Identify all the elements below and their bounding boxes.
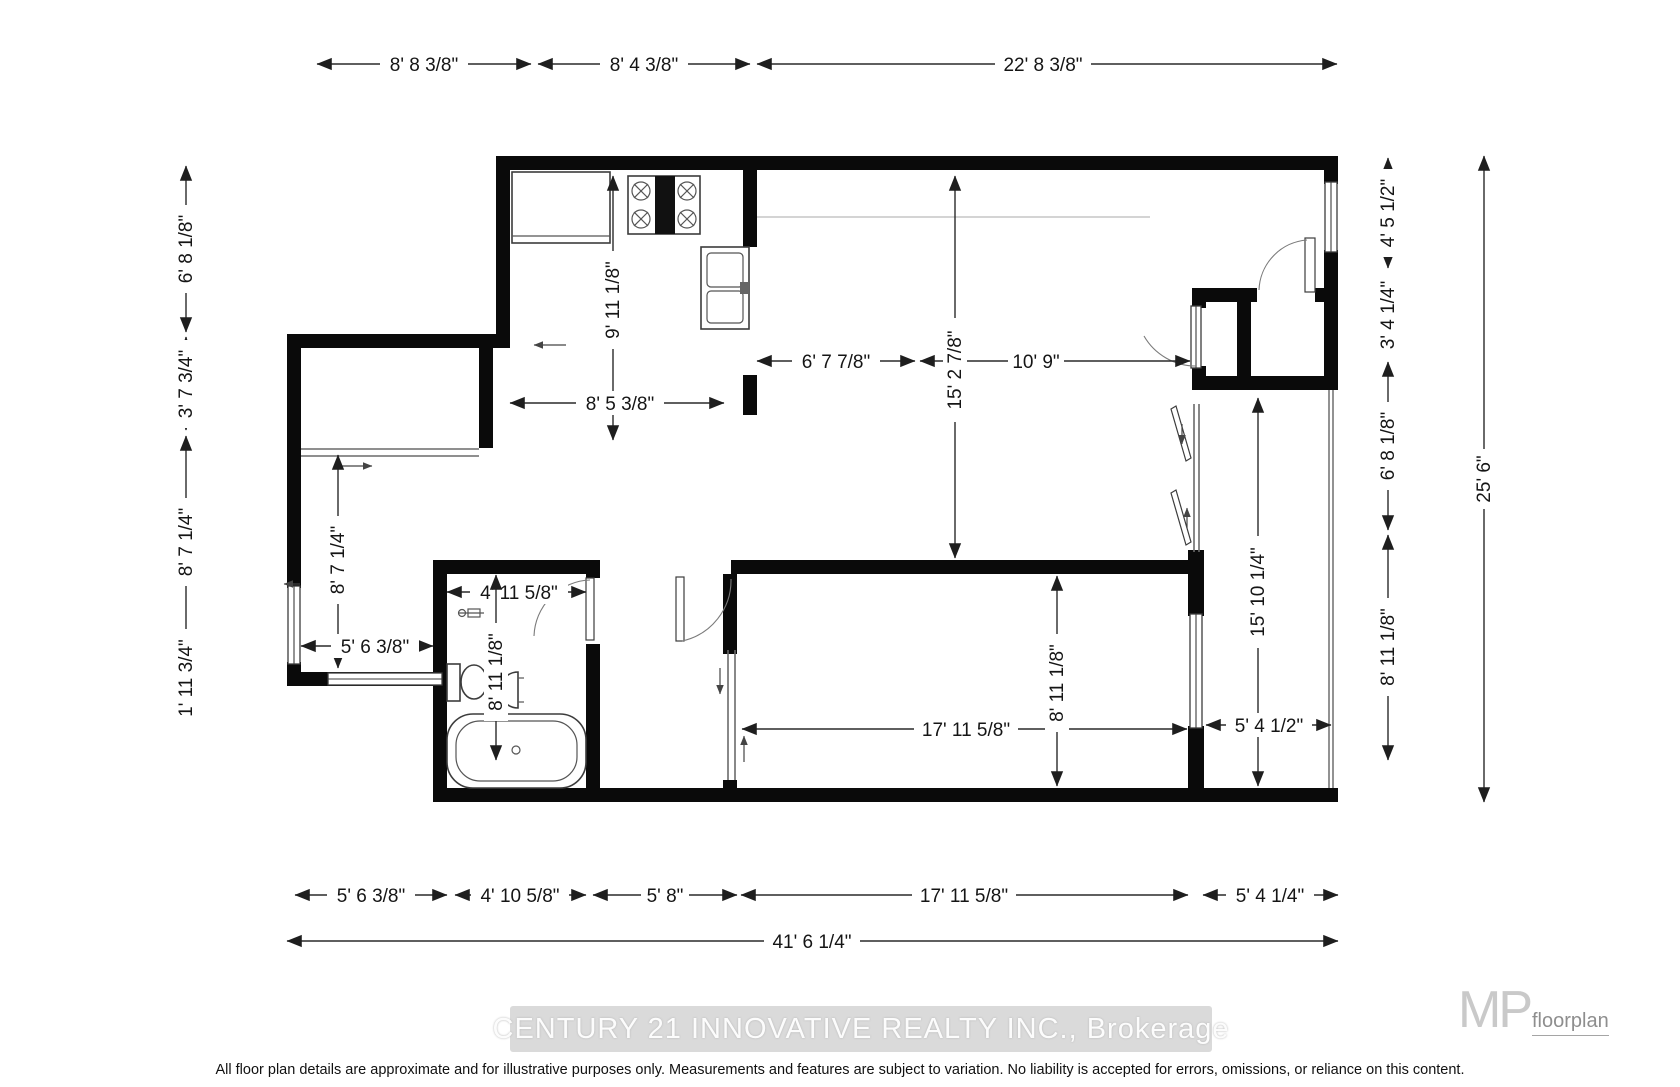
dim-label: 41' 6 1/4" <box>772 932 851 953</box>
logo-monogram: MP <box>1458 984 1530 1036</box>
dim-left-1: 6' 8 1/8" <box>174 166 198 332</box>
dim-living-height: 15' 2 7/8" <box>943 176 967 558</box>
dim-right-total: 25' 6" <box>1472 156 1496 802</box>
dim-label: 8' 11 1/8" <box>486 633 507 711</box>
closet-bottom-wall <box>1192 376 1338 390</box>
disclaimer-text: All floor plan details are approximate a… <box>0 1062 1680 1078</box>
dim-bedroom-height: 8' 11 1/8" <box>1045 576 1069 786</box>
dim-bedroom-width: 17' 11 5/8" <box>742 717 1187 741</box>
floorplan-drawing: 8' 8 3/8" 8' 4 3/8" 22' 8 3/8" 6' 8 1/8"… <box>0 0 1680 1087</box>
dim-label: 3' 4 1/4" <box>1378 281 1399 349</box>
closet-divider-wall <box>1237 302 1251 376</box>
kitchen-right-wall-stub <box>743 375 757 415</box>
dim-label: 8' 11 1/8" <box>1047 644 1068 722</box>
stove-icon <box>628 176 700 234</box>
dim-label: 4' 10 5/8" <box>480 886 559 907</box>
dim-bottom-total: 41' 6 1/4" <box>287 929 1338 953</box>
bathroom-right-wall-lower <box>586 644 600 802</box>
dim-kitchen-width: 8' 5 3/8" <box>510 391 724 415</box>
bedroom-closet-slider <box>720 650 744 780</box>
bedroom-divider-wall-upper <box>723 574 737 654</box>
dim-label: 3' 7 3/4" <box>176 350 197 418</box>
dim-label: 6' 7 7/8" <box>802 352 870 373</box>
dim-label: 5' 4 1/2" <box>1235 716 1303 737</box>
dim-living-width-1: 6' 7 7/8" <box>757 349 915 373</box>
balcony-wall-block-upper <box>1188 550 1204 616</box>
bedroom-door <box>676 577 731 641</box>
dim-label: 1' 11 3/4" <box>176 639 197 717</box>
kitchen-sink-icon <box>701 247 749 329</box>
dim-bath-width: 4' 11 5/8" <box>447 580 586 604</box>
dim-label: 5' 4 1/4" <box>1236 886 1304 907</box>
floorplan-page: { "footer": { "watermark": "CENTURY 21 I… <box>0 0 1680 1087</box>
entry-door <box>1259 238 1315 292</box>
kitchen-counter-icon <box>512 172 610 243</box>
dim-label: 5' 8" <box>647 886 684 907</box>
dim-label: 17' 11 5/8" <box>920 886 1008 907</box>
dim-label: 9' 11 1/8" <box>603 261 624 339</box>
dim-label: 15' 10 1/4" <box>1248 547 1269 637</box>
left-wing-top-wall <box>287 334 510 348</box>
kitchen-left-wall <box>496 156 510 348</box>
door-panel <box>1171 406 1191 461</box>
dim-leftroom-width: 5' 6 3/8" <box>301 634 433 658</box>
dim-bottom-4: 17' 11 5/8" <box>741 883 1188 907</box>
bottom-wall <box>433 788 1338 802</box>
left-outer-wall-upper <box>287 334 301 588</box>
toilet-icon <box>447 664 487 701</box>
dim-label: 22' 8 3/8" <box>1003 55 1082 76</box>
hall-closet-wall <box>479 348 493 448</box>
dim-top-mid: 8' 4 3/8" <box>538 52 750 76</box>
bathroom-top-wall <box>433 560 600 574</box>
towel-bar-icon <box>458 609 484 617</box>
bathtub-icon <box>447 714 586 788</box>
floorplan-logo: MP floorplan <box>1458 984 1609 1036</box>
dim-right-2: 3' 4 1/4" <box>1376 271 1400 359</box>
dim-right-3: 6' 8 1/8" <box>1376 362 1400 530</box>
dim-left-2: 3' 7 3/4" <box>174 337 198 430</box>
dim-bottom-5: 5' 4 1/4" <box>1203 883 1338 907</box>
dim-top-right: 22' 8 3/8" <box>757 52 1337 76</box>
dim-label: 4' 11 5/8" <box>480 583 558 604</box>
dim-left-4: 1' 11 3/4" <box>174 629 198 727</box>
closet-left-jamb-lower <box>1192 366 1206 390</box>
dim-label: 6' 8 1/8" <box>176 215 197 283</box>
closet-left-jamb-upper <box>1192 288 1206 308</box>
dim-label: 8' 7 1/4" <box>328 526 349 594</box>
top-wall <box>496 156 1338 170</box>
dim-label: 6' 8 1/8" <box>1378 412 1399 480</box>
walls <box>287 156 1338 802</box>
balcony-sliding-door <box>1171 404 1199 552</box>
dim-bottom-2: 4' 10 5/8" <box>455 883 586 907</box>
door-panel <box>1171 490 1191 545</box>
brokerage-watermark: CENTURY 21 INNOVATIVE REALTY INC., Broke… <box>510 1006 1212 1052</box>
right-wall-mid <box>1324 250 1338 390</box>
foyer-closet-door <box>1144 306 1201 368</box>
dim-label: 10' 9" <box>1012 352 1059 373</box>
dim-label: 17' 11 5/8" <box>922 720 1010 741</box>
dim-label: 8' 11 1/8" <box>1378 608 1399 686</box>
dim-balcony-width: 5' 4 1/2" <box>1206 713 1331 737</box>
dim-bottom-1: 5' 6 3/8" <box>295 883 447 907</box>
dim-label: 5' 6 3/8" <box>337 886 405 907</box>
dim-left-3: 8' 7 1/4" <box>174 436 198 648</box>
dim-label: 8' 8 3/8" <box>390 55 458 76</box>
bathroom-right-wall-upper <box>586 560 600 578</box>
left-wing-closet-slider <box>301 449 479 466</box>
kitchen-right-wall-upper <box>743 170 757 247</box>
dim-label: 25' 6" <box>1474 455 1495 502</box>
dim-top-left: 8' 8 3/8" <box>317 52 531 76</box>
dimensions: 8' 8 3/8" 8' 4 3/8" 22' 8 3/8" 6' 8 1/8"… <box>174 52 1496 953</box>
dim-right-1: 4' 5 1/2" <box>1376 158 1400 268</box>
bedroom-top-wall <box>731 560 1192 574</box>
dim-right-4: 8' 11 1/8" <box>1376 535 1400 760</box>
dim-label: 5' 6 3/8" <box>341 637 409 658</box>
dim-label: 4' 5 1/2" <box>1378 179 1399 247</box>
dim-bottom-3: 5' 8" <box>593 883 737 907</box>
right-wall-upper <box>1324 156 1338 184</box>
logo-name: floorplan <box>1532 1010 1609 1036</box>
dim-label: 8' 4 3/8" <box>610 55 678 76</box>
dim-label: 8' 7 1/4" <box>176 508 197 576</box>
dim-label: 8' 5 3/8" <box>586 394 654 415</box>
dim-label: 15' 2 7/8" <box>945 330 966 409</box>
